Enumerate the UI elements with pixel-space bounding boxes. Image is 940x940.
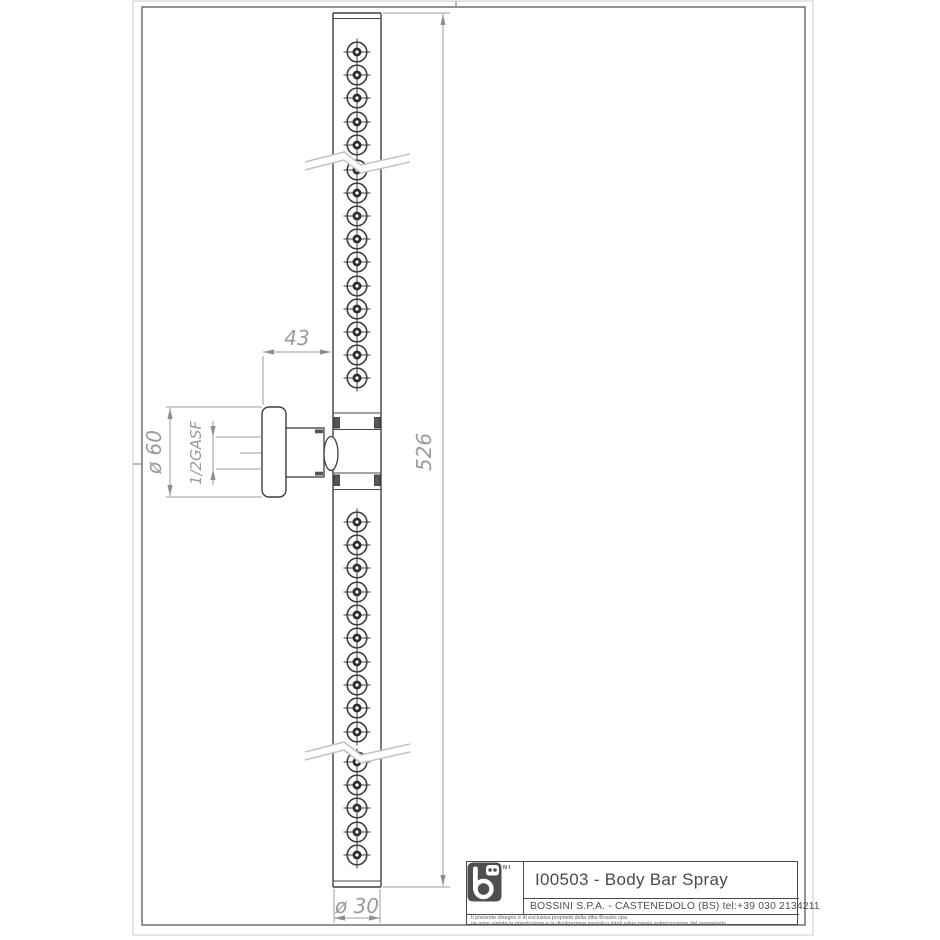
logo-cell: BOSSINI (467, 862, 524, 914)
mount-stem (286, 428, 324, 477)
title-block: BOSSINI I00503 - Body Bar Spray BOSSINI … (466, 861, 798, 925)
mount-flange (262, 407, 286, 497)
dimension-label-dia30: ø 30 (334, 894, 379, 918)
bossini-logo-icon (467, 862, 502, 902)
company-line: BOSSINI S.P.A. - CASTENEDOLO (BS) tel:+3… (524, 899, 799, 914)
dimension-label-thread: 1/2GASF (187, 421, 205, 486)
drawing-title: I00503 - Body Bar Spray (524, 862, 799, 899)
holder-clip (375, 418, 381, 429)
holder-clip (334, 475, 340, 486)
disclaimer-line-2: ne sono vietate la riproduzione e la div… (471, 922, 797, 928)
disclaimer: Il presente disegno è di esclusiva propr… (467, 914, 799, 926)
paper-border (133, 1, 813, 935)
technical-drawing: 43 526 ø 30 ø 60 (0, 0, 940, 940)
dimension-label-dia60: ø 60 (142, 430, 166, 475)
drawing-sheet: 43 526 ø 30 ø 60 (0, 0, 940, 940)
dimension-label-526: 526 (412, 433, 436, 471)
stem-ring (315, 472, 323, 476)
holder-clip (375, 475, 381, 486)
joint-lens (324, 437, 338, 471)
dimension-bar-diameter: ø 30 (334, 889, 380, 923)
holder-clip (334, 418, 340, 429)
stem-ring (315, 430, 323, 434)
dimension-label-43: 43 (284, 326, 309, 350)
